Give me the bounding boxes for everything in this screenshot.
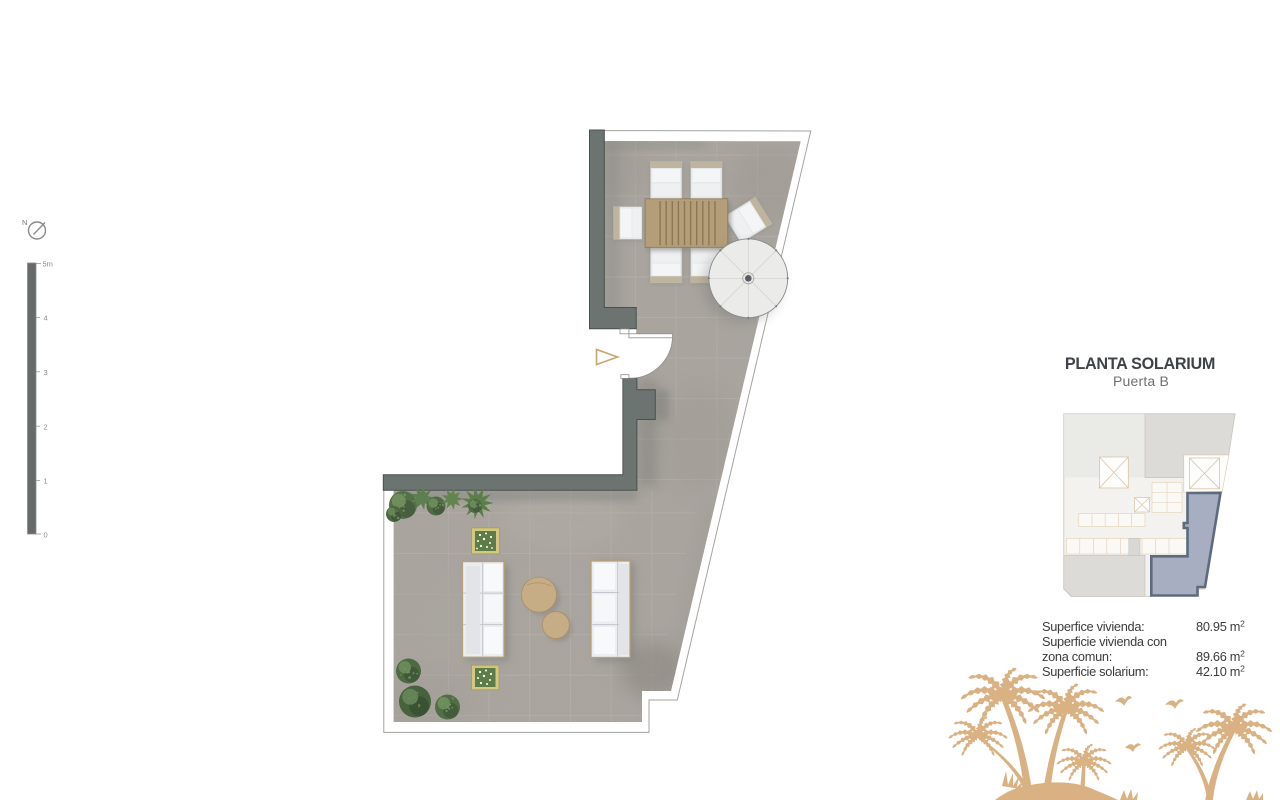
- svg-text:PLANTA SOLARIUM: PLANTA SOLARIUM: [1065, 355, 1215, 373]
- svg-text:Superfice vivienda:: Superfice vivienda:: [1042, 619, 1144, 634]
- svg-text:zona comun:: zona comun:: [1042, 649, 1112, 664]
- svg-text:1: 1: [44, 477, 48, 486]
- svg-text:80.95 m2: 80.95 m2: [1196, 619, 1245, 635]
- svg-text:89.66 m2: 89.66 m2: [1196, 649, 1245, 665]
- svg-text:Superficie solarium:: Superficie solarium:: [1042, 664, 1148, 679]
- svg-text:42.10 m2: 42.10 m2: [1196, 664, 1245, 680]
- svg-text:Puerta B: Puerta B: [1113, 373, 1169, 389]
- svg-text:3: 3: [44, 368, 48, 377]
- svg-text:0: 0: [44, 531, 48, 540]
- svg-text:4: 4: [44, 314, 48, 323]
- svg-text:5m: 5m: [43, 260, 53, 269]
- svg-text:N: N: [22, 218, 27, 227]
- svg-text:Superficie vivienda con: Superficie vivienda con: [1042, 634, 1167, 649]
- svg-text:2: 2: [44, 422, 48, 431]
